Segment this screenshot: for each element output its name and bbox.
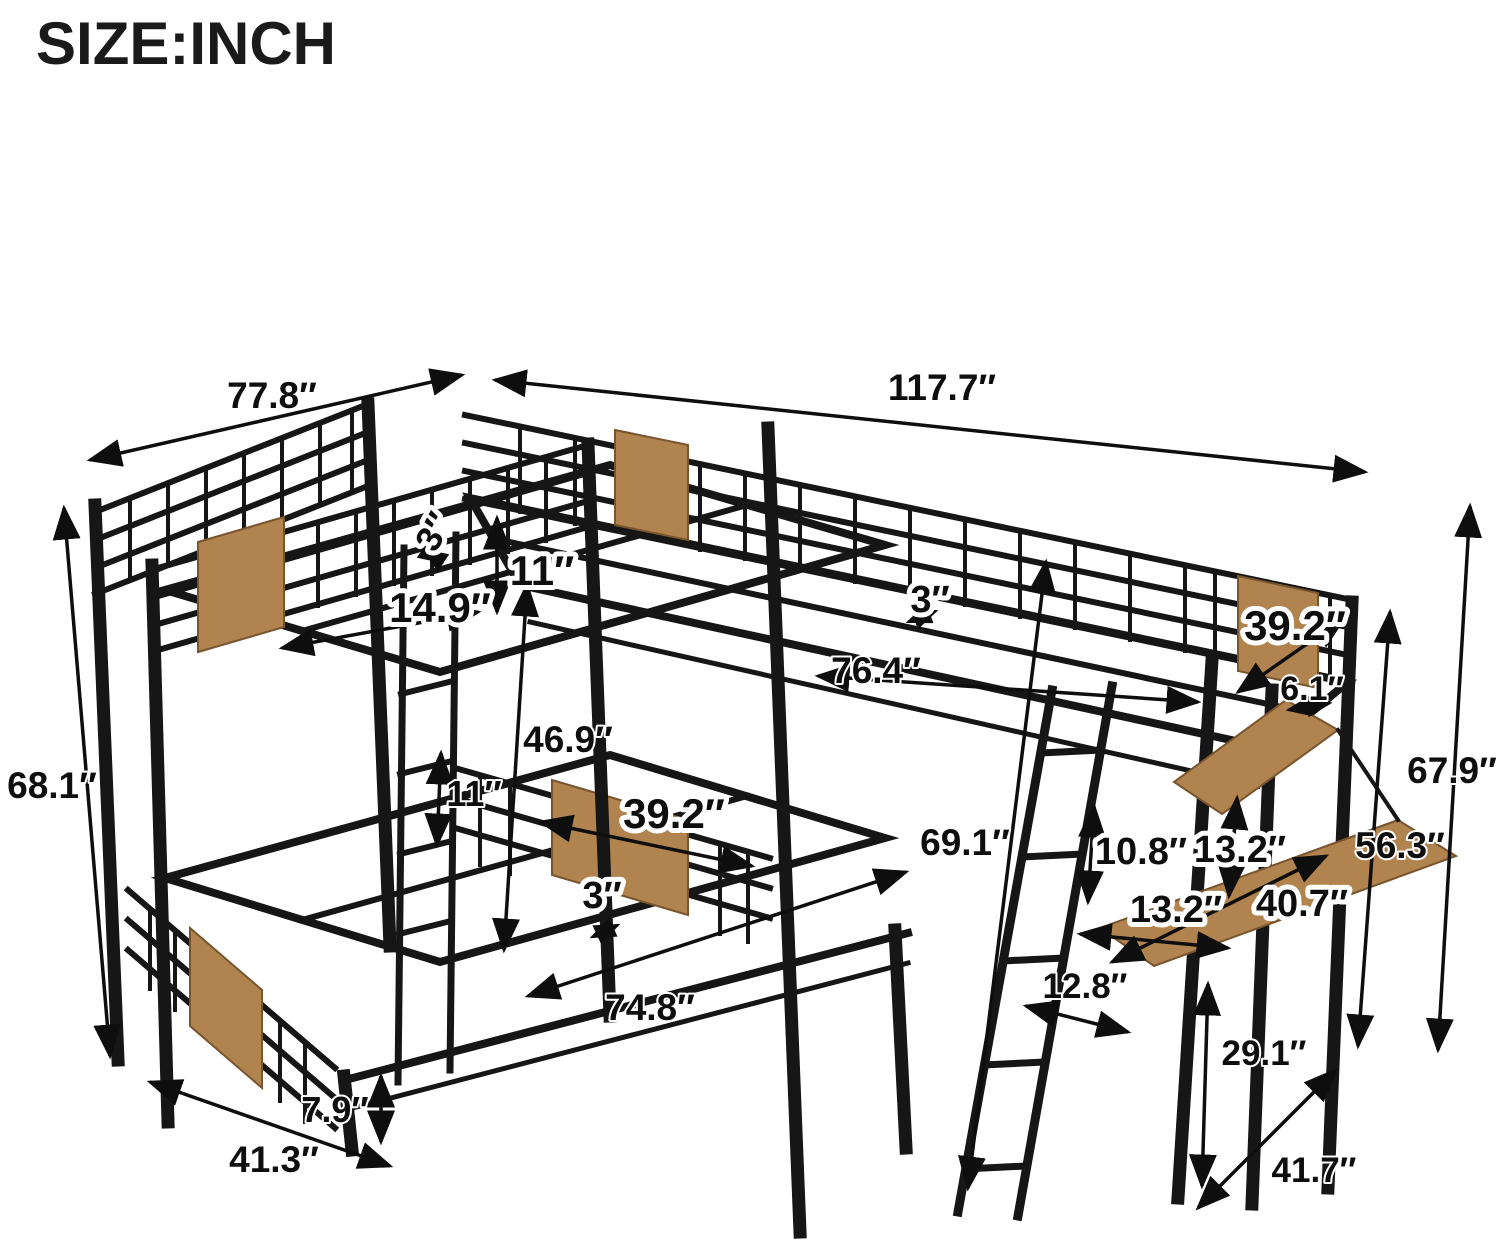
dim-arrow-12-8 (1026, 1006, 1128, 1032)
dim-label-3-bottom: 3″ (582, 875, 621, 917)
dim-label-46-9: 46.9″ (523, 719, 613, 760)
dim-arrow-46-9 (504, 585, 527, 950)
dim-label-69-1: 69.1″ (920, 822, 1010, 863)
dim-label-74-8: 74.8″ (605, 987, 695, 1028)
dim-label-76-4: 76.4″ (831, 650, 921, 691)
lower-headboard-panel-left (190, 928, 262, 1088)
bed-structure (95, 404, 1456, 1232)
dim-label-7-9: 7.9″ (301, 1089, 368, 1130)
upper-shelf (1174, 700, 1338, 814)
dim-label-41-7: 41.7″ (1272, 1151, 1357, 1190)
dim-label-3-mid: 3″ (910, 579, 949, 621)
dim-label-56-3: 56.3″ (1355, 825, 1445, 866)
loft-ladder (958, 686, 1112, 1216)
dim-label-11-bottom: 11″ (446, 773, 501, 814)
size-diagram-page: SIZE:INCH (0, 0, 1500, 1243)
dim-arrow-69-1 (968, 562, 1046, 1188)
dim-label-13-2-shelf: 13.2″ (1194, 829, 1286, 871)
dim-label-29-1: 29.1″ (1222, 1034, 1307, 1073)
dim-label-10-8: 10.8″ (1095, 831, 1187, 873)
dim-label-117-7: 117.7″ (888, 367, 997, 408)
dim-label-41-3: 41.3″ (229, 1139, 319, 1180)
dim-label-11-top: 11″ (510, 547, 575, 594)
dim-label-6-1: 6.1″ (1280, 670, 1344, 708)
dim-label-39-2-right: 39.2″ (1244, 602, 1346, 649)
dim-label-39-2-bottom: 39.2″ (623, 790, 725, 837)
dim-label-12-8: 12.8″ (1043, 967, 1128, 1006)
bed-dimension-diagram: SIZE:INCH (0, 0, 1500, 1243)
dim-label-14-9: 14.9″ (389, 584, 491, 631)
dim-label-40-7: 40.7″ (1256, 883, 1348, 925)
dim-label-67-9: 67.9″ (1407, 750, 1497, 791)
dim-arrow-29-1 (1202, 984, 1208, 1186)
dim-label-77-8: 77.8″ (227, 375, 317, 416)
page-title: SIZE:INCH (36, 10, 336, 77)
dim-label-13-2-desk: 13.2″ (1130, 889, 1222, 931)
dim-label-68-1: 68.1″ (7, 765, 97, 806)
upper-headboard-panel (198, 517, 284, 652)
loft-headboard-panel-left (615, 430, 688, 540)
